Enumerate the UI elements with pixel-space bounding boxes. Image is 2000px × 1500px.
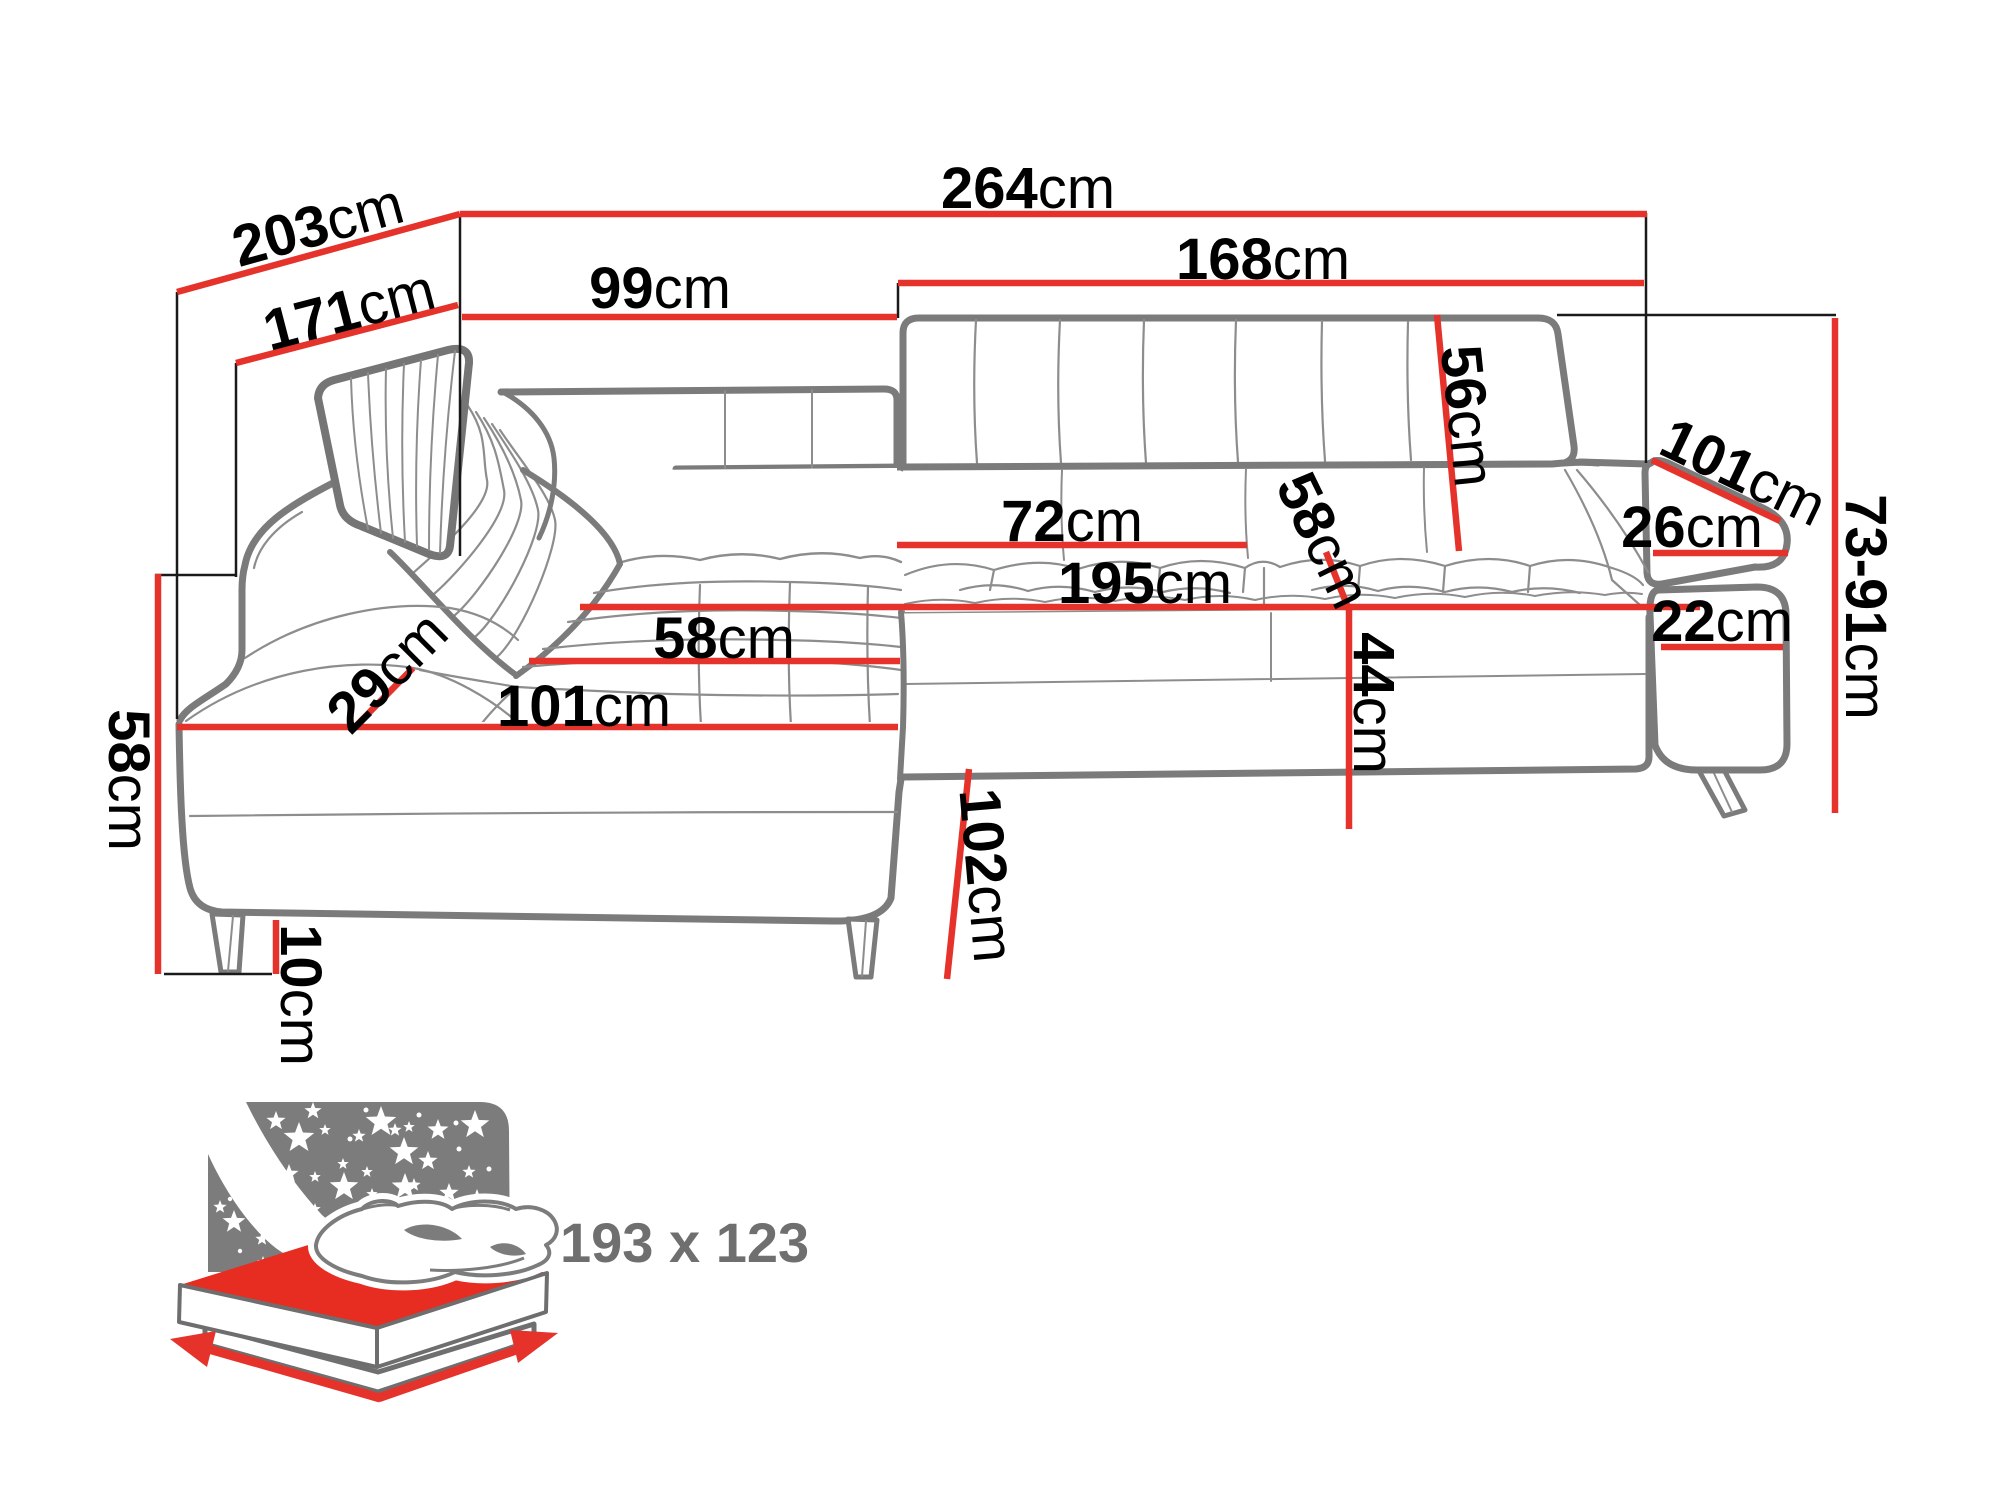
svg-text:10cm: 10cm xyxy=(268,924,333,1066)
svg-text:58cm: 58cm xyxy=(96,709,161,851)
svg-text:193 x 123: 193 x 123 xyxy=(560,1211,809,1274)
svg-text:72cm: 72cm xyxy=(1001,489,1143,554)
svg-text:26cm: 26cm xyxy=(1621,495,1763,560)
svg-text:168cm: 168cm xyxy=(1176,227,1350,292)
svg-text:195cm: 195cm xyxy=(1058,551,1232,616)
svg-text:99cm: 99cm xyxy=(589,256,731,321)
svg-text:264cm: 264cm xyxy=(941,156,1115,221)
svg-text:101cm: 101cm xyxy=(497,674,671,739)
svg-text:44cm: 44cm xyxy=(1341,632,1406,774)
svg-text:22cm: 22cm xyxy=(1651,589,1793,654)
svg-text:58cm: 58cm xyxy=(653,606,795,671)
svg-text:73-91cm: 73-91cm xyxy=(1833,494,1898,720)
